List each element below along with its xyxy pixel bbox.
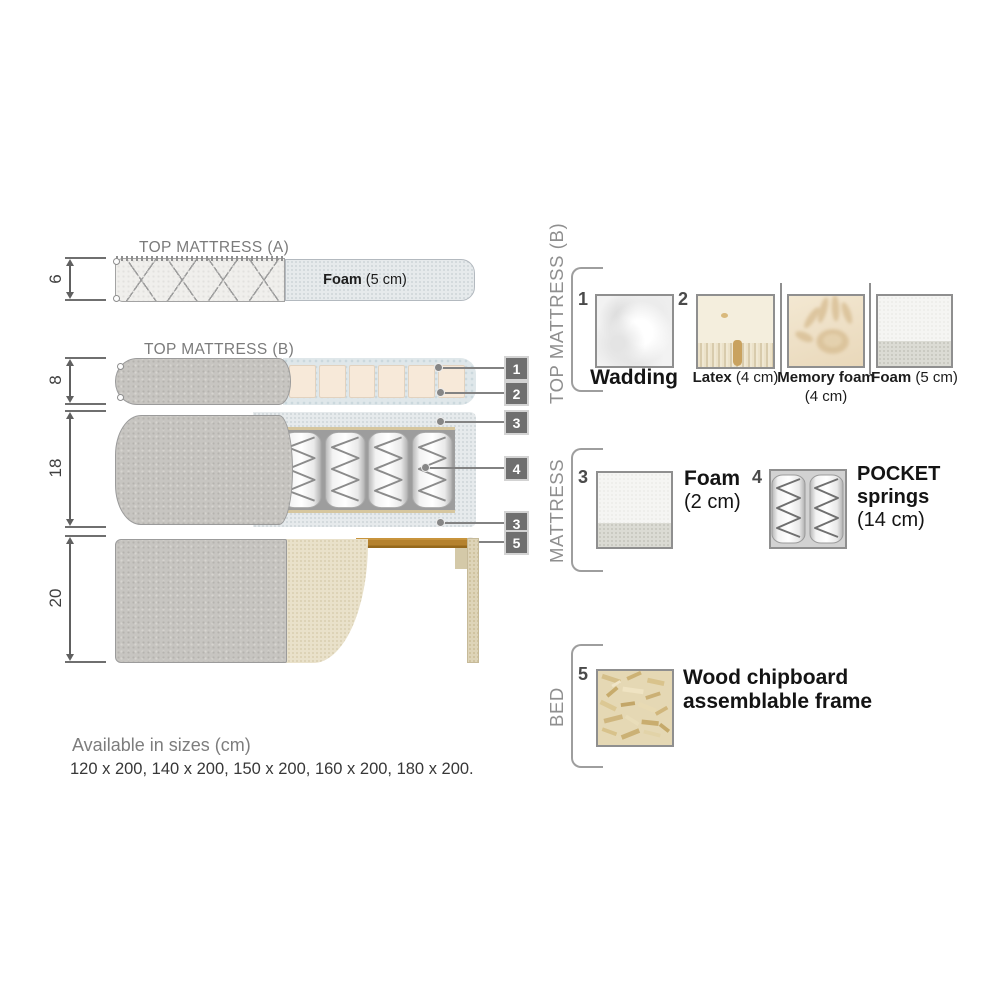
top-mattress-b-drawing <box>115 358 476 405</box>
wood-slat <box>356 538 471 548</box>
hand-imprint <box>789 296 863 366</box>
memory-foam-label: Memory foam (4 cm) <box>777 369 875 407</box>
legend-section-top-mattress-b: TOP MATTRESS (B) <box>546 256 568 404</box>
callout-badge-3-top: 3 <box>504 410 529 435</box>
top-mattress-b-title: TOP MATTRESS (B) <box>144 341 294 359</box>
foam-smooth-part <box>598 473 671 523</box>
top-mattress-a-drawing: Foam (5 cm) <box>115 258 476 302</box>
callout-badge-2: 2 <box>504 381 529 406</box>
callout-line <box>444 421 504 423</box>
spring-pouch <box>771 473 807 545</box>
latex-label: Latex (4 cm) <box>678 369 793 388</box>
callout-line <box>429 467 504 469</box>
dim-18-label: 18 <box>36 454 76 482</box>
callout-dot <box>436 518 445 527</box>
legend-divider <box>869 283 871 374</box>
callout-badge-5: 5 <box>504 530 529 555</box>
legend-item-number: 3 <box>578 467 588 488</box>
fabric-cover-b <box>115 358 291 405</box>
callout-line <box>444 392 504 394</box>
memory-foam-texture <box>789 296 863 366</box>
callout-dot <box>436 417 445 426</box>
legend-section-bed: BED <box>546 660 568 755</box>
foam-porous-part <box>598 523 671 547</box>
mattress-layers-diagram: TOP MATTRESS (A) 6 Foam (5 cm) TOP MATTR… <box>0 0 1000 1000</box>
callout-badge-1: 1 <box>504 356 529 381</box>
corner-pin <box>113 258 120 265</box>
dim-tick <box>65 661 106 663</box>
latex-block <box>319 365 346 398</box>
dim-arrowhead <box>66 412 74 419</box>
sizes-values: 120 x 200, 140 x 200, 150 x 200, 160 x 2… <box>70 760 474 779</box>
chipboard-block <box>455 548 467 569</box>
latex-image <box>696 294 775 369</box>
callout-badge-4: 4 <box>504 456 529 481</box>
legend-item-number: 1 <box>578 289 588 310</box>
fabric-cover-mattress <box>115 415 293 525</box>
corner-pin <box>117 363 124 370</box>
quilted-cover <box>115 258 285 302</box>
bed-beige-fabric <box>283 539 368 663</box>
dim-8-label: 8 <box>41 366 71 394</box>
chipboard-leg <box>467 538 479 663</box>
spring-pouch <box>411 430 454 510</box>
wadding-layer <box>283 358 476 405</box>
dim-20-label: 20 <box>36 584 76 612</box>
dim-arrowhead <box>66 654 74 661</box>
latex-block <box>378 365 405 398</box>
callout-line <box>444 522 504 524</box>
foam-seam <box>278 510 455 513</box>
latex-drip <box>733 340 742 366</box>
spring-pouch <box>809 473 845 545</box>
dim-arrowhead <box>66 396 74 403</box>
spring-pouch <box>324 430 367 510</box>
latex-block <box>408 365 435 398</box>
dim-tick <box>65 299 106 301</box>
fabric-cover-bed <box>115 539 287 663</box>
callout-line <box>442 367 504 369</box>
foam-layer-a: Foam (5 cm) <box>285 259 475 301</box>
spring-pouch <box>367 430 410 510</box>
dim-arrowhead <box>66 519 74 526</box>
wadding-image <box>595 294 674 368</box>
corner-pin <box>117 394 124 401</box>
legend-item-number: 5 <box>578 664 588 685</box>
callout-dot <box>434 363 443 372</box>
latex-block <box>289 365 316 398</box>
wadding-label: Wadding <box>584 366 684 390</box>
dim-tick <box>65 403 106 405</box>
latex-block <box>349 365 376 398</box>
zigzag-trim <box>116 256 284 261</box>
callout-dot <box>421 463 430 472</box>
pocket-springs-image <box>769 469 847 549</box>
foam-5cm-label: Foam (5 cm) <box>864 369 965 388</box>
dim-arrowhead <box>66 537 74 544</box>
foam-smooth-part <box>878 296 951 341</box>
dim-6-label: 6 <box>41 265 71 293</box>
corner-pin <box>113 295 120 302</box>
pocket-springs-illustration <box>771 471 845 547</box>
foam-5cm-image <box>876 294 953 368</box>
pocket-springs-label: POCKET springs(14 cm) <box>857 463 975 532</box>
legend-item-number: 2 <box>678 289 688 310</box>
foam-texture <box>878 296 951 366</box>
legend-divider <box>780 283 782 374</box>
memory-foam-image <box>787 294 865 368</box>
latex-texture <box>698 296 773 367</box>
wadding-texture <box>597 296 672 366</box>
top-mattress-a-title: TOP MATTRESS (A) <box>139 239 289 257</box>
callout-dot <box>436 388 445 397</box>
latex-drop <box>721 313 728 318</box>
dim-arrowhead <box>66 359 74 366</box>
foam-2cm-image <box>596 471 673 549</box>
sizes-heading: Available in sizes (cm) <box>72 735 251 756</box>
chipboard-texture <box>598 671 672 745</box>
foam-texture <box>598 473 671 547</box>
legend-section-mattress: MATTRESS <box>546 458 568 563</box>
dim-tick <box>65 526 106 528</box>
chipboard-image <box>596 669 674 747</box>
foam-porous-part <box>878 341 951 366</box>
dim-arrowhead <box>66 292 74 299</box>
legend-item-number: 4 <box>752 467 762 488</box>
wood-chipboard-label: Wood chipboard assemblable frame <box>683 666 915 714</box>
